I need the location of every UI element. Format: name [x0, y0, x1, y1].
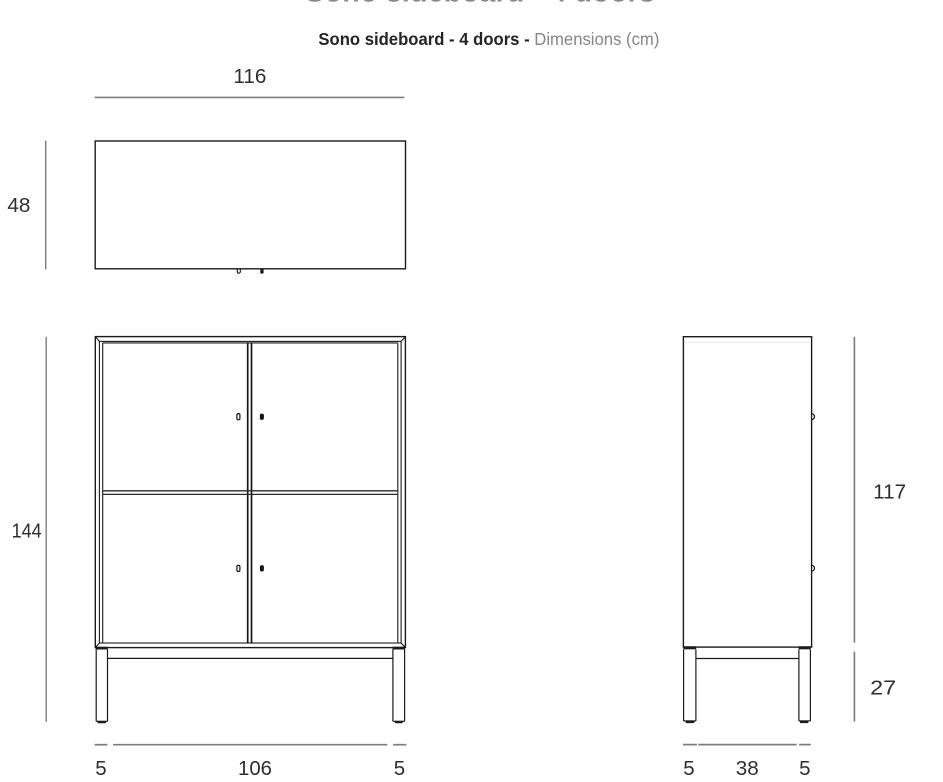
svg-text:5: 5 [95, 757, 106, 780]
svg-text:5: 5 [683, 757, 694, 780]
svg-text:144: 144 [12, 519, 42, 542]
svg-text:Sono sideboard - 4 doors - Dim: Sono sideboard - 4 doors - Dimensions (c… [318, 29, 659, 49]
svg-text:48: 48 [7, 194, 30, 217]
svg-text:106: 106 [238, 757, 272, 780]
svg-text:5: 5 [799, 757, 810, 780]
svg-text:117: 117 [873, 481, 906, 504]
svg-text:Sono sideboard - 4 doors: Sono sideboard - 4 doors [305, 0, 655, 8]
svg-text:5: 5 [394, 757, 405, 780]
svg-text:27: 27 [870, 677, 896, 700]
svg-text:38: 38 [736, 757, 759, 780]
svg-text:116: 116 [233, 65, 266, 88]
